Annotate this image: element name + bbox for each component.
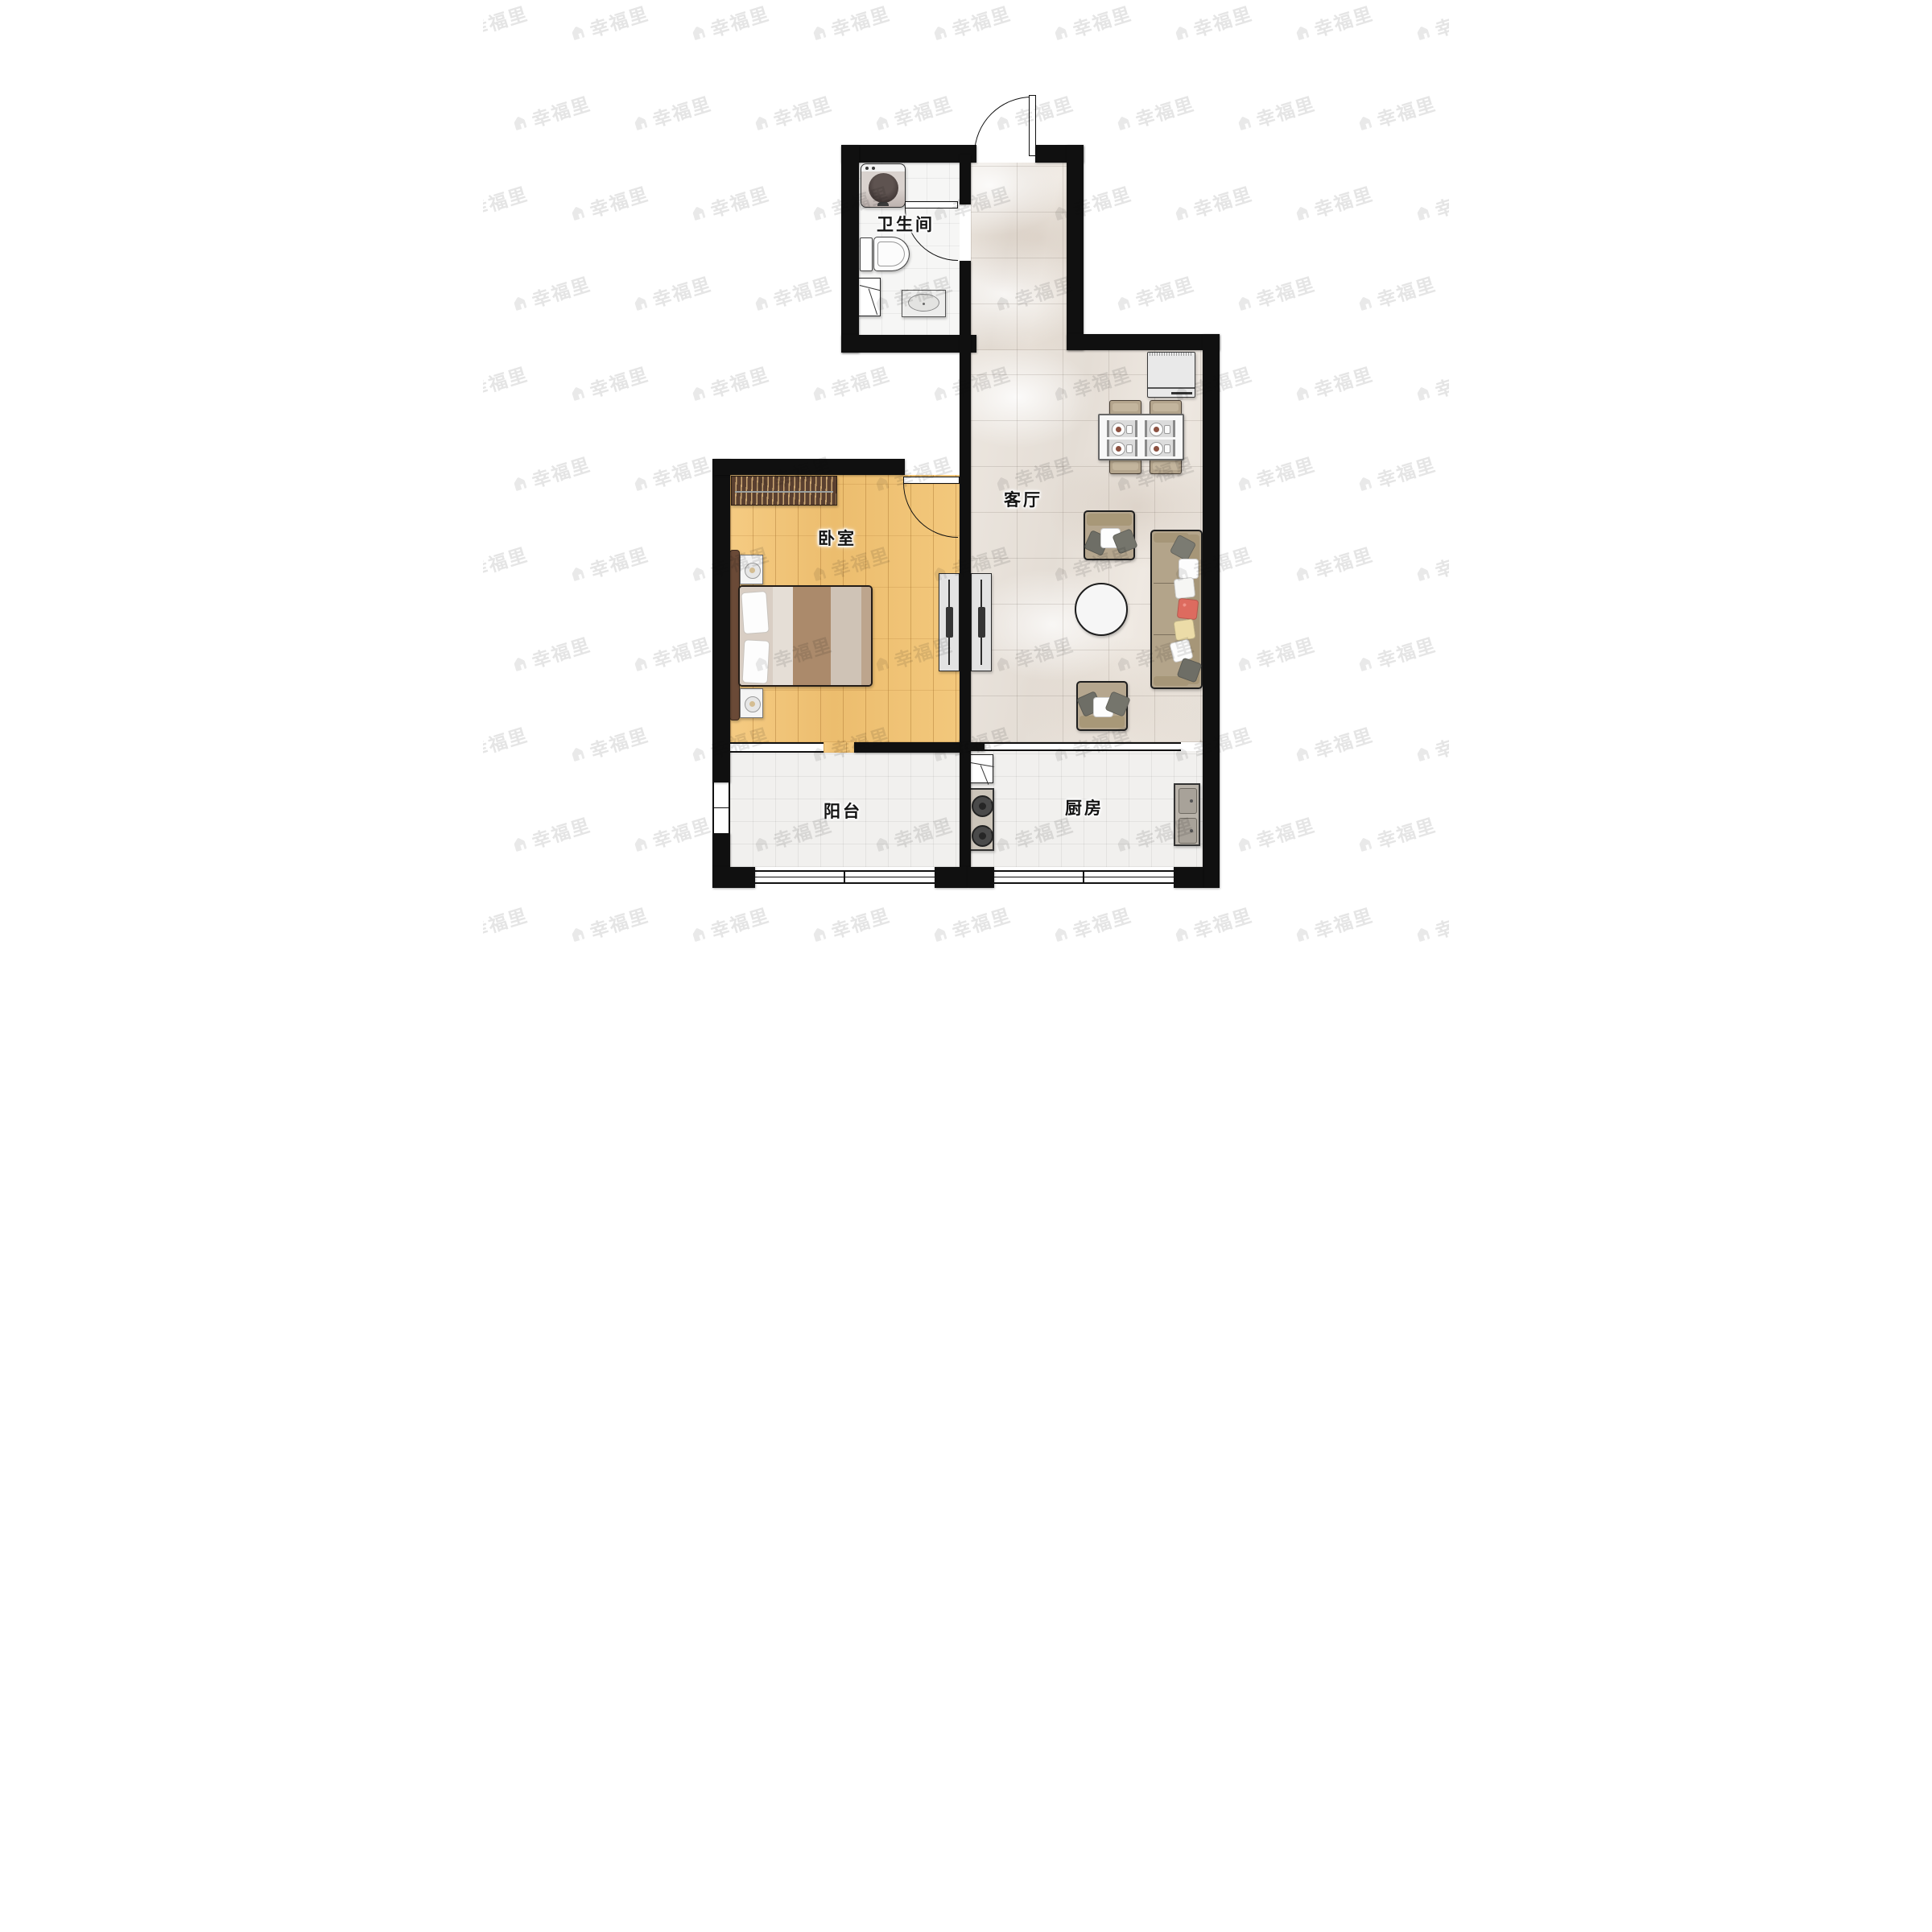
watermark-text: 幸福里 [483,539,531,583]
house-icon [687,923,709,945]
watermark-tile: 幸福里 [565,359,651,409]
watermark-tile: 幸福里 [628,269,714,319]
bed-pillow [742,639,770,684]
sink-basin [1179,788,1197,814]
watermark-text: 幸福里 [1253,89,1319,132]
watermark-text: 幸福里 [1373,630,1439,673]
house-icon [1412,22,1434,43]
watermark-tile: 幸福里 [686,0,772,48]
watermark-tile: 幸福里 [686,900,772,950]
fridge-handle [1171,392,1192,394]
watermark-text: 幸福里 [828,0,894,42]
watermark-tile: 幸福里 [1410,0,1449,48]
house-icon [567,202,588,224]
watermark-text: 幸福里 [707,900,773,943]
watermark-text: 幸福里 [528,810,594,853]
watermark-text: 幸福里 [890,89,956,132]
floorplan-canvas: 卫生间 客厅 卧室 阳台 厨房 幸福里幸福里幸福里幸福里幸福里幸福里幸福里幸福里… [483,0,1449,966]
balcony-front-window [755,870,935,884]
room-label-kitchen: 厨房 [1065,795,1104,819]
house-icon [630,473,651,494]
wardrobe [731,476,837,506]
armchair-top [1084,510,1135,560]
pillow-white [1174,577,1195,599]
house-icon [1412,202,1434,224]
watermark-text: 幸福里 [649,630,715,673]
watermark-tile: 幸福里 [483,0,531,48]
watermark-tile: 幸福里 [1410,720,1449,770]
cup-icon [1126,444,1133,453]
watermark-text: 幸福里 [649,810,715,853]
house-icon [567,22,588,43]
watermark-text: 幸福里 [586,900,652,943]
watermark-tile: 幸福里 [1169,0,1255,48]
watermark-text: 幸福里 [1190,900,1256,943]
watermark-tile: 幸福里 [483,900,531,950]
house-icon [1354,653,1376,675]
house-icon [567,743,588,765]
living-room-floor-corridor [971,163,1067,350]
house-icon [567,563,588,584]
watermark-tile: 幸福里 [507,449,593,499]
sofa [1150,530,1203,689]
watermark-tile: 幸福里 [1048,900,1134,950]
house-icon [509,833,530,855]
entrance-door-arc [974,97,1032,155]
wall-divider-main [960,261,971,867]
window-tick [844,872,845,882]
watermark-text: 幸福里 [1069,900,1135,943]
wall-bedroom-top [714,459,905,475]
watermark-tile: 幸福里 [1290,900,1376,950]
bed-blanket-band [831,587,861,685]
wall-divider-upper [960,155,971,204]
house-icon [1354,833,1376,855]
wall-right-upper [1067,145,1084,350]
watermark-text: 幸福里 [528,89,594,132]
bed-sheet-band [773,587,793,685]
wall-bathroom-top [841,145,976,163]
watermark-text: 幸福里 [649,269,715,312]
wall-kitchen-bottom-right [1174,867,1203,888]
toilet-tank [860,237,873,271]
watermark-tile: 幸福里 [628,630,714,679]
plate-icon [1112,442,1125,456]
wall-kitchen-bottom-left [968,867,994,888]
house-icon [750,112,772,134]
washer-control-dot [872,167,875,170]
wardrobe-rail [735,491,833,493]
watermark-text: 幸福里 [586,539,652,583]
watermark-text: 幸福里 [586,720,652,763]
watermark-tile: 幸福里 [1410,900,1449,950]
washer-drum [869,173,898,203]
house-icon [1233,833,1255,855]
house-icon [509,112,530,134]
house-icon [1291,22,1313,43]
house-icon [509,292,530,314]
kitchen-front-window [993,870,1174,884]
watermark-text: 幸福里 [1311,720,1377,763]
watermark-text: 幸福里 [948,0,1014,42]
shelf-fold-line [860,285,881,291]
watermark-text: 幸福里 [1190,0,1256,42]
watermark-tile: 幸福里 [1290,179,1376,229]
watermark-text: 幸福里 [586,179,652,222]
watermark-text: 幸福里 [1190,179,1256,222]
watermark-text: 幸福里 [586,0,652,42]
sink-drain [1190,799,1193,803]
basin-tap [923,303,925,305]
nightstand-bottom [740,688,763,718]
watermark-tile: 幸福里 [1290,720,1376,770]
watermark-tile: 幸福里 [1410,179,1449,229]
house-icon [1412,923,1434,945]
tv-icon [978,607,985,638]
watermark-tile: 幸福里 [807,359,893,409]
watermark-text: 幸福里 [1132,269,1198,312]
watermark-text: 幸福里 [1431,0,1449,42]
window-mid-line [714,807,729,809]
watermark-tile: 幸福里 [1048,0,1134,48]
watermark-tile: 幸福里 [565,900,651,950]
tv-icon [946,607,953,638]
watermark-text: 幸福里 [1431,900,1449,943]
house-icon [1170,202,1192,224]
house-icon [567,923,588,945]
house-icon [1170,22,1192,43]
watermark-text: 幸福里 [707,179,773,222]
sink-basin [1179,818,1197,844]
dining-chair [1150,459,1182,474]
watermark-text: 幸福里 [1373,89,1439,132]
house-icon [630,112,651,134]
watermark-tile: 幸福里 [1352,449,1439,499]
house-icon [808,22,830,43]
washer-notch [877,202,889,206]
watermark-tile: 幸福里 [807,900,893,950]
house-icon [567,382,588,404]
house-icon [1233,473,1255,494]
plate-icon [1150,442,1163,456]
watermark-text: 幸福里 [1311,900,1377,943]
wall-balcony-left-lower [712,833,730,867]
bathroom-washbasin [902,290,946,317]
house-icon [808,923,830,945]
watermark-tile: 幸福里 [927,900,1013,950]
watermark-tile: 幸福里 [749,269,835,319]
house-icon [1354,112,1376,134]
house-icon [750,292,772,314]
kitchen-sink [1174,783,1200,846]
watermark-tile: 幸福里 [483,539,531,589]
watermark-text: 幸福里 [770,89,836,132]
watermark-text: 幸福里 [828,900,894,943]
cup-icon [1126,425,1133,434]
house-icon [1233,112,1255,134]
stove-knob [988,799,991,803]
house-icon [509,473,530,494]
watermark-tile: 幸福里 [565,0,651,48]
house-icon [1291,743,1313,765]
watermark-tile: 幸福里 [1169,900,1255,950]
watermark-text: 幸福里 [1431,359,1449,402]
watermark-tile: 幸福里 [749,89,835,138]
watermark-tile: 幸福里 [1111,269,1197,319]
watermark-text: 幸福里 [1132,89,1198,132]
cup-icon [1164,444,1170,453]
burner-icon [972,825,993,847]
watermark-tile: 幸福里 [1352,810,1439,860]
watermark-text: 幸福里 [1311,179,1377,222]
watermark-text: 幸福里 [948,900,1014,943]
house-icon [1170,923,1192,945]
watermark-tile: 幸福里 [1111,89,1197,138]
watermark-text: 幸福里 [528,630,594,673]
house-icon [687,202,709,224]
plate-icon [1112,423,1125,436]
sink-drain [1190,829,1193,832]
double-bed [738,585,873,687]
watermark-text: 幸福里 [1311,0,1377,42]
house-icon [1291,202,1313,224]
watermark-text: 幸福里 [649,449,715,493]
watermark-text: 幸福里 [649,89,715,132]
house-icon [1412,382,1434,404]
watermark-tile: 幸福里 [1410,359,1449,409]
house-icon [687,563,709,584]
watermark-text: 幸福里 [1431,539,1449,583]
watermark-text: 幸福里 [1253,810,1319,853]
watermark-text: 幸福里 [1069,0,1135,42]
armchair-bottom [1076,681,1128,731]
watermark-text: 幸福里 [1431,179,1449,222]
pillow-cream [1173,618,1195,641]
watermark-text: 幸福里 [1253,630,1319,673]
kitchen-passthrough-window [985,742,1181,751]
wall-widen-top [1067,334,1220,350]
watermark-tile: 幸福里 [1290,539,1376,589]
wall-kitchen-top-stub [968,742,985,751]
house-icon [1233,292,1255,314]
watermark-text: 幸福里 [1373,810,1439,853]
bedroom-door-leaf [903,477,960,484]
watermark-text: 幸福里 [828,359,894,402]
house-icon [687,22,709,43]
armchair-back [1080,716,1124,728]
watermark-tile: 幸福里 [1290,359,1376,409]
watermark-text: 幸福里 [483,720,531,763]
watermark-tile: 幸福里 [1352,89,1439,138]
watermark-tile: 幸福里 [869,89,956,138]
watermark-tile: 幸福里 [686,359,772,409]
house-icon [509,653,530,675]
watermark-tile: 幸福里 [807,0,893,48]
watermark-tile: 幸福里 [565,720,651,770]
watermark-tile: 幸福里 [483,179,531,229]
watermark-text: 幸福里 [770,269,836,312]
bed-blanket-band [861,587,873,685]
round-coffee-table [1075,583,1128,636]
cup-icon [1164,425,1170,434]
watermark-tile: 幸福里 [1169,179,1255,229]
wall-bathroom-left [841,145,859,353]
house-icon [687,743,709,765]
watermark-tile: 幸福里 [483,720,531,770]
stove-knob [988,837,991,840]
watermark-tile: 幸福里 [1410,539,1449,589]
plate-icon [1150,423,1163,436]
dining-table [1098,414,1184,460]
watermark-tile: 幸福里 [565,539,651,589]
watermark-text: 幸福里 [1311,359,1377,402]
watermark-text: 幸福里 [1373,449,1439,493]
fridge-coil [1150,353,1193,356]
house-icon [1412,743,1434,765]
washing-machine [861,163,906,208]
house-icon [808,202,830,224]
house-icon [929,22,951,43]
watermark-text: 幸福里 [483,359,531,402]
wall-bedroom-left [712,459,730,782]
bathroom-door-leaf [905,201,958,208]
watermark-text: 幸福里 [586,359,652,402]
watermark-tile: 幸福里 [507,269,593,319]
balcony-side-window [712,782,730,833]
watermark-tile: 幸福里 [927,0,1013,48]
watermark-text: 幸福里 [707,0,773,42]
cabinet-fold-line [971,762,994,767]
bed-pillow [741,591,770,634]
room-label-bedroom: 卧室 [818,526,857,550]
cabinet-fold-line [980,765,989,785]
house-icon [630,833,651,855]
house-icon [1050,923,1071,945]
watermark-text: 幸福里 [1311,539,1377,583]
stove-knob [988,807,991,811]
watermark-tile: 幸福里 [1290,0,1376,48]
house-icon [1050,22,1071,43]
watermark-tile: 幸福里 [1232,810,1318,860]
house-icon [1291,382,1313,404]
watermark-text: 幸福里 [483,900,531,943]
house-icon [630,292,651,314]
bathroom-corner-shelf [858,278,881,316]
watermark-text: 幸福里 [1373,269,1439,312]
stove-knob [988,829,991,832]
watermark-text: 幸福里 [528,449,594,493]
toilet-icon [873,237,910,271]
watermark-tile: 幸福里 [686,179,772,229]
watermark-tile: 幸福里 [628,449,714,499]
room-label-living: 客厅 [1004,487,1042,511]
armchair-back [1087,514,1131,526]
watermark-tile: 幸福里 [1232,630,1318,679]
washer-control-dot [865,167,869,170]
bed-blanket-band [793,587,831,685]
bedroom-balcony-window [729,742,824,753]
room-label-balcony: 阳台 [824,799,862,823]
lamp-icon [745,696,761,712]
house-icon [1291,563,1313,584]
wall-bathroom-bottom [841,335,976,353]
watermark-text: 幸福里 [1431,720,1449,763]
house-icon [1354,473,1376,494]
house-icon [1354,292,1376,314]
toilet-seat [877,242,905,266]
wall-right-outer [1203,334,1220,888]
watermark-tile: 幸福里 [507,630,593,679]
bedroom-balcony-threshold [824,742,854,753]
house-icon [1113,292,1134,314]
watermark-tile: 幸福里 [565,179,651,229]
watermark-tile: 幸福里 [507,89,593,138]
watermark-text: 幸福里 [1253,269,1319,312]
room-label-bathroom: 卫生间 [877,212,935,236]
gas-stove [967,788,994,851]
burner-icon [972,795,993,817]
house-icon [1113,112,1134,134]
house-icon [929,923,951,945]
nightstand-top [740,555,763,584]
watermark-tile: 幸福里 [1232,269,1318,319]
watermark-tile: 幸福里 [1352,630,1439,679]
watermark-tile: 幸福里 [1352,269,1439,319]
house-icon [630,653,651,675]
dining-chair [1109,459,1141,474]
pillow-white [1179,559,1199,579]
window-tick [1083,872,1084,882]
tv-cabinet-living [971,573,992,671]
shelf-fold-line [868,288,877,315]
house-icon [687,382,709,404]
wall-bedroom-balcony [854,742,960,753]
fridge-door-line [1148,387,1195,389]
watermark-tile: 幸福里 [1232,449,1318,499]
watermark-tile: 幸福里 [628,810,714,860]
watermark-text: 幸福里 [528,269,594,312]
wall-balcony-bottom-right [935,867,968,888]
watermark-tile: 幸福里 [1232,89,1318,138]
watermark-text: 幸福里 [483,0,531,42]
house-icon [1291,923,1313,945]
tv-cabinet-bedroom [939,573,960,671]
watermark-text: 幸福里 [707,359,773,402]
kitchen-corner-cabinet [969,754,993,783]
house-icon [1233,653,1255,675]
refrigerator [1147,352,1195,398]
watermark-tile: 幸福里 [483,359,531,409]
wall-balcony-bottom-left [712,867,755,888]
house-icon [871,112,893,134]
watermark-tile: 幸福里 [507,810,593,860]
watermark-text: 幸福里 [483,179,531,222]
house-icon [929,382,951,404]
watermark-text: 幸福里 [1253,449,1319,493]
lamp-icon [745,563,761,579]
watermark-tile: 幸福里 [628,89,714,138]
house-icon [1412,563,1434,584]
pillow-red [1177,598,1199,620]
house-icon [808,382,830,404]
